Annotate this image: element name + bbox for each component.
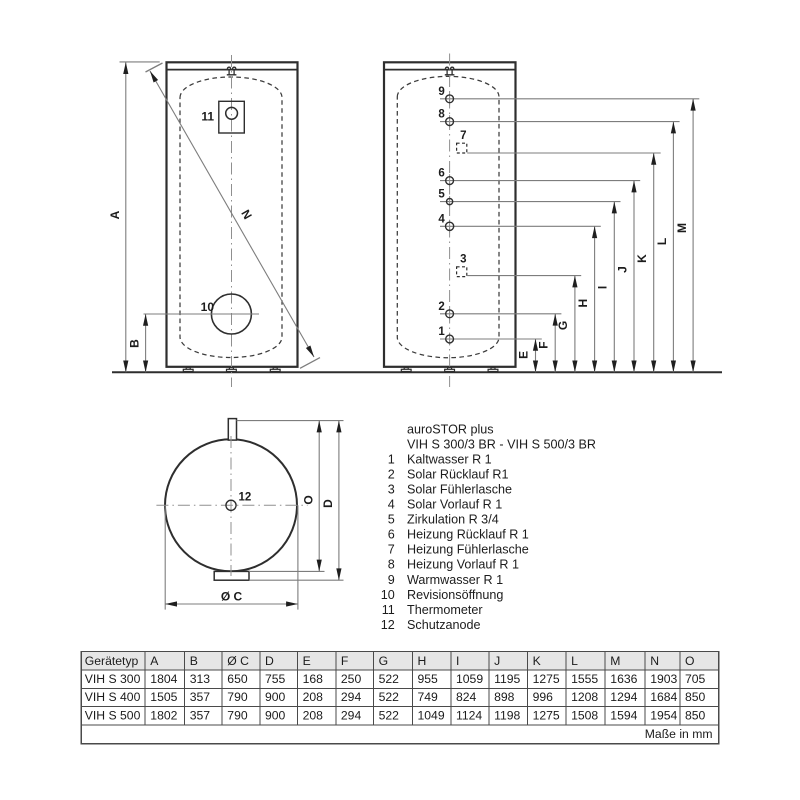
svg-text:F: F — [536, 341, 550, 348]
svg-text:I: I — [456, 654, 459, 668]
svg-text:A: A — [150, 654, 159, 668]
svg-text:522: 522 — [379, 709, 400, 723]
svg-text:705: 705 — [685, 672, 706, 686]
svg-text:900: 900 — [265, 690, 286, 704]
svg-text:996: 996 — [533, 690, 554, 704]
svg-text:313: 313 — [190, 672, 211, 686]
svg-text:749: 749 — [418, 690, 439, 704]
svg-text:8: 8 — [438, 109, 445, 121]
svg-text:I: I — [596, 286, 610, 289]
svg-text:3: 3 — [460, 254, 466, 266]
svg-text:Kaltwasser R 1: Kaltwasser R 1 — [407, 452, 492, 466]
svg-text:Heizung Vorlauf R 1: Heizung Vorlauf R 1 — [407, 558, 519, 572]
svg-text:D: D — [265, 654, 274, 668]
svg-text:O: O — [685, 654, 694, 668]
svg-text:1555: 1555 — [571, 672, 598, 686]
svg-text:294: 294 — [341, 709, 362, 723]
svg-text:F: F — [341, 654, 348, 668]
svg-text:B: B — [128, 339, 142, 348]
svg-text:D: D — [321, 499, 335, 508]
svg-text:1059: 1059 — [456, 672, 483, 686]
svg-text:2: 2 — [388, 468, 395, 482]
svg-text:208: 208 — [303, 709, 324, 723]
svg-text:Heizung Fühlerlasche: Heizung Fühlerlasche — [407, 543, 529, 557]
svg-text:1903: 1903 — [650, 672, 677, 686]
svg-text:M: M — [675, 223, 689, 233]
svg-text:8: 8 — [388, 558, 395, 572]
svg-text:Maße in mm: Maße in mm — [645, 727, 713, 741]
svg-text:1049: 1049 — [418, 709, 445, 723]
svg-text:9: 9 — [388, 573, 395, 587]
svg-text:9: 9 — [438, 86, 444, 98]
svg-text:898: 898 — [494, 690, 515, 704]
svg-text:J: J — [616, 266, 630, 273]
svg-text:1954: 1954 — [650, 709, 677, 723]
svg-text:E: E — [516, 351, 530, 359]
svg-text:G: G — [556, 321, 570, 330]
svg-text:755: 755 — [265, 672, 286, 686]
svg-text:1804: 1804 — [150, 672, 177, 686]
svg-text:1208: 1208 — [571, 690, 598, 704]
svg-text:522: 522 — [379, 672, 400, 686]
svg-text:N: N — [650, 654, 659, 668]
svg-text:Thermometer: Thermometer — [407, 603, 483, 617]
svg-text:H: H — [576, 299, 590, 308]
svg-text:Warmwasser R 1: Warmwasser R 1 — [407, 573, 503, 587]
svg-text:1294: 1294 — [610, 690, 637, 704]
svg-text:790: 790 — [227, 709, 248, 723]
svg-text:1: 1 — [388, 452, 395, 466]
svg-text:1594: 1594 — [610, 709, 637, 723]
svg-text:1275: 1275 — [533, 672, 560, 686]
svg-text:522: 522 — [379, 690, 400, 704]
svg-text:1275: 1275 — [533, 709, 560, 723]
svg-text:5: 5 — [438, 189, 445, 201]
svg-text:H: H — [418, 654, 427, 668]
svg-text:208: 208 — [303, 690, 324, 704]
svg-text:1508: 1508 — [571, 709, 598, 723]
svg-text:294: 294 — [341, 690, 362, 704]
svg-text:1195: 1195 — [494, 672, 520, 686]
svg-text:900: 900 — [265, 709, 286, 723]
svg-text:4: 4 — [388, 498, 395, 512]
svg-text:B: B — [190, 654, 198, 668]
svg-text:Ø C: Ø C — [227, 654, 249, 668]
svg-text:Schutzanode: Schutzanode — [407, 618, 481, 632]
svg-text:VIH S 300: VIH S 300 — [85, 672, 141, 686]
svg-text:E: E — [303, 654, 311, 668]
svg-text:K: K — [533, 654, 541, 668]
svg-text:Zirkulation R 3/4: Zirkulation R 3/4 — [407, 513, 499, 527]
svg-text:650: 650 — [227, 672, 248, 686]
svg-text:J: J — [494, 654, 500, 668]
svg-text:2: 2 — [438, 301, 444, 313]
svg-text:250: 250 — [341, 672, 362, 686]
svg-text:Revisionsöffnung: Revisionsöffnung — [407, 588, 503, 602]
svg-text:10: 10 — [381, 588, 395, 602]
svg-text:168: 168 — [303, 672, 324, 686]
svg-text:1: 1 — [438, 326, 445, 338]
svg-text:3: 3 — [388, 483, 395, 497]
svg-text:1636: 1636 — [610, 672, 637, 686]
svg-text:Ø C: Ø C — [221, 590, 243, 604]
svg-text:VIH S 500: VIH S 500 — [85, 709, 141, 723]
svg-text:1505: 1505 — [150, 690, 177, 704]
svg-text:11: 11 — [382, 603, 395, 617]
svg-text:12: 12 — [381, 618, 395, 632]
svg-text:850: 850 — [685, 690, 706, 704]
svg-text:5: 5 — [388, 513, 395, 527]
svg-text:4: 4 — [438, 213, 445, 225]
svg-text:1802: 1802 — [150, 709, 177, 723]
svg-text:6: 6 — [388, 528, 395, 542]
svg-text:7: 7 — [460, 130, 466, 142]
svg-text:850: 850 — [685, 709, 706, 723]
svg-text:L: L — [655, 238, 669, 245]
svg-text:357: 357 — [190, 690, 211, 704]
svg-text:VIH S 300/3 BR - VIH S 500/3 B: VIH S 300/3 BR - VIH S 500/3 BR — [407, 437, 596, 451]
svg-text:G: G — [379, 654, 388, 668]
svg-text:L: L — [571, 654, 578, 668]
svg-text:6: 6 — [438, 168, 444, 180]
svg-text:790: 790 — [227, 690, 248, 704]
svg-text:357: 357 — [190, 709, 211, 723]
svg-text:11: 11 — [201, 110, 214, 124]
svg-text:O: O — [301, 495, 315, 504]
svg-text:Solar Vorlauf R 1: Solar Vorlauf R 1 — [407, 498, 502, 512]
svg-text:1198: 1198 — [494, 709, 520, 723]
svg-text:824: 824 — [456, 690, 477, 704]
svg-text:M: M — [610, 654, 620, 668]
svg-text:1124: 1124 — [456, 709, 482, 723]
svg-text:12: 12 — [239, 492, 252, 504]
svg-text:1684: 1684 — [650, 690, 677, 704]
svg-text:Gerätetyp: Gerätetyp — [85, 654, 139, 668]
svg-text:10: 10 — [201, 300, 215, 314]
svg-text:Solar Rücklauf R1: Solar Rücklauf R1 — [407, 468, 509, 482]
svg-text:7: 7 — [388, 543, 395, 557]
svg-text:Heizung Rücklauf R 1: Heizung Rücklauf R 1 — [407, 528, 529, 542]
svg-text:Solar Fühlerlasche: Solar Fühlerlasche — [407, 483, 512, 497]
svg-text:955: 955 — [418, 672, 439, 686]
svg-text:VIH S 400: VIH S 400 — [85, 690, 141, 704]
svg-text:auroSTOR plus: auroSTOR plus — [407, 422, 494, 436]
svg-text:A: A — [108, 210, 122, 219]
svg-text:K: K — [635, 254, 649, 263]
